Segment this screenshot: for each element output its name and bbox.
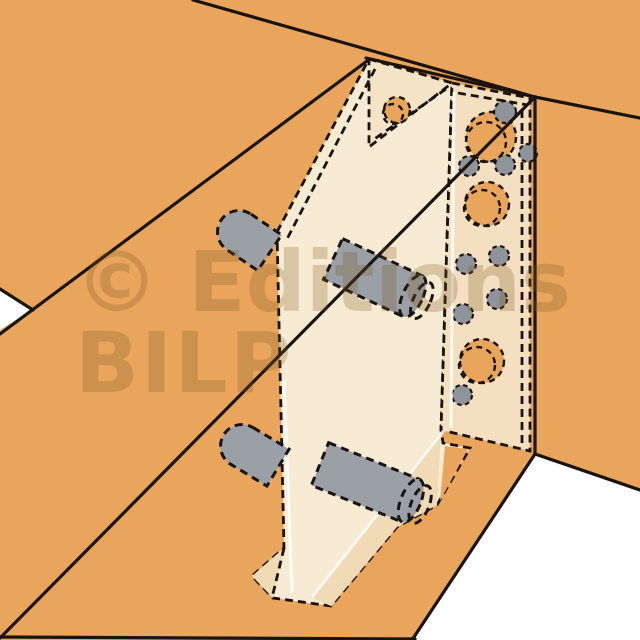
bolt-hole-middle — [465, 182, 509, 226]
watermark-line-2: BILP — [75, 314, 293, 412]
illustration-canvas: © Editions BILP — [0, 0, 640, 640]
floor-front-edge — [0, 637, 415, 639]
gusset-hole — [384, 97, 410, 123]
bolt-hole-bottom — [460, 339, 504, 383]
screw-pin — [495, 155, 515, 175]
screw-pin — [452, 385, 472, 405]
illustration-stage: © Editions BILP — [0, 0, 640, 640]
